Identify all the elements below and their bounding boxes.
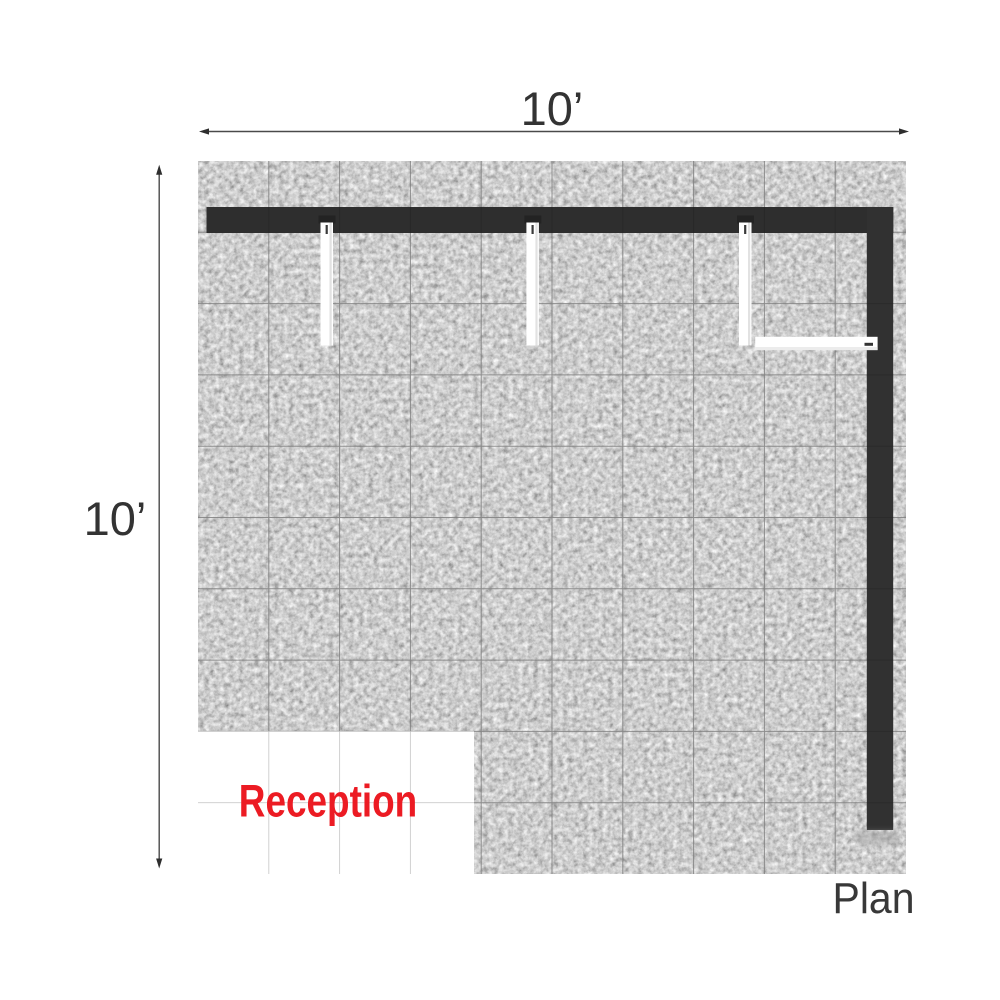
svg-text:10’: 10’ — [521, 82, 584, 135]
svg-text:10’: 10’ — [84, 492, 147, 545]
svg-text:Plan: Plan — [833, 875, 915, 923]
svg-text:Reception: Reception — [239, 775, 417, 826]
